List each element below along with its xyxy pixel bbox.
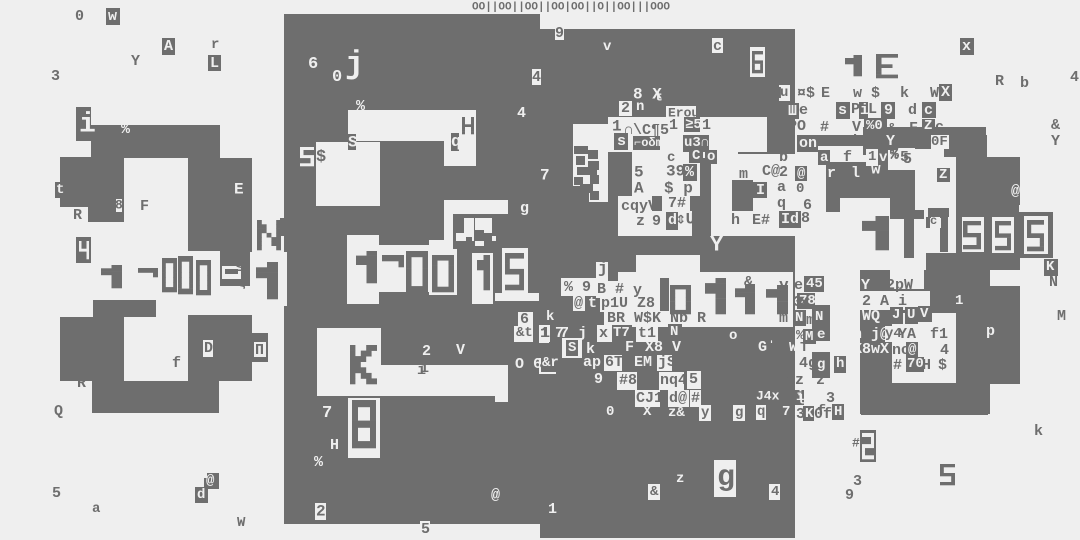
svg-text:Π: Π — [255, 342, 264, 359]
svg-text:9: 9 — [594, 371, 603, 388]
svg-text:#8: #8 — [619, 372, 637, 389]
svg-text:k: k — [546, 309, 554, 325]
svg-text:k: k — [1034, 423, 1043, 440]
svg-text:%: % — [314, 454, 324, 471]
svg-text:@: @ — [797, 166, 806, 182]
svg-text:PO: PO — [788, 118, 806, 135]
svg-text:3: 3 — [51, 68, 60, 85]
svg-text:P: P — [851, 101, 860, 118]
svg-text:k: k — [900, 85, 909, 102]
svg-text:0: 0 — [332, 68, 342, 87]
svg-text:c: c — [930, 214, 937, 228]
svg-text:r: r — [827, 165, 836, 182]
svg-text:W: W — [789, 340, 798, 356]
svg-text:E: E — [821, 85, 830, 102]
svg-text:8: 8 — [801, 210, 810, 227]
svg-text:q: q — [451, 133, 461, 152]
svg-text:9: 9 — [845, 487, 854, 504]
svg-text:EM: EM — [634, 354, 652, 371]
svg-text:V: V — [456, 342, 465, 359]
svg-text:W: W — [930, 85, 939, 102]
svg-text:1: 1 — [541, 325, 550, 342]
svg-text:&r: &r — [542, 355, 559, 371]
svg-text:t: t — [56, 182, 64, 198]
svg-text:ap: ap — [583, 354, 601, 371]
svg-text:v: v — [603, 39, 612, 55]
svg-text:&: & — [650, 484, 659, 500]
svg-text:≤: ≤ — [236, 260, 244, 276]
svg-text:D: D — [204, 340, 213, 357]
svg-text:jS: jS — [658, 354, 676, 371]
svg-text:⌐oδm: ⌐oδm — [634, 136, 663, 150]
svg-text:@: @ — [206, 473, 215, 489]
svg-text:u: u — [780, 85, 788, 101]
svg-text:C: C — [692, 148, 701, 164]
svg-text:#: # — [852, 436, 860, 451]
svg-text:6T: 6T — [605, 354, 623, 371]
svg-text:Y: Y — [1051, 133, 1060, 150]
svg-text:1: 1 — [702, 117, 711, 134]
svg-text:0: 0 — [796, 181, 804, 197]
svg-text:x: x — [599, 325, 608, 342]
svg-text:4: 4 — [517, 105, 526, 122]
svg-text:2pW: 2pW — [886, 277, 913, 294]
svg-text:ς: ς — [238, 276, 246, 291]
svg-text:nq4: nq4 — [660, 372, 687, 389]
svg-text:9: 9 — [884, 102, 893, 119]
svg-text:&: & — [744, 274, 753, 291]
svg-text:#: # — [893, 357, 902, 374]
svg-text:F: F — [909, 120, 918, 137]
svg-text:t: t — [655, 90, 663, 105]
svg-text:s: s — [617, 133, 626, 150]
svg-text:$: $ — [938, 357, 947, 374]
svg-text:CJ1: CJ1 — [636, 390, 663, 407]
svg-text:0F: 0F — [931, 134, 948, 150]
svg-text:hr: hr — [853, 133, 871, 150]
svg-text:r: r — [211, 37, 219, 53]
svg-text:45: 45 — [806, 276, 823, 292]
svg-text:A: A — [634, 180, 644, 198]
svg-text:5: 5 — [903, 151, 912, 168]
svg-text:6: 6 — [520, 311, 529, 328]
svg-text:0f: 0f — [814, 406, 832, 423]
svg-text:E#: E# — [752, 212, 770, 229]
svg-text:3: 3 — [797, 297, 806, 314]
svg-text:z: z — [816, 372, 825, 389]
svg-text:#: # — [820, 119, 829, 136]
svg-text:@: @ — [1011, 183, 1020, 200]
svg-text:1: 1 — [955, 293, 963, 309]
svg-text:N: N — [815, 309, 823, 325]
svg-text:m: m — [779, 310, 788, 327]
svg-text:4: 4 — [1070, 69, 1079, 86]
svg-text:p: p — [986, 323, 995, 340]
svg-text:M: M — [1057, 308, 1066, 325]
svg-text:@: @ — [574, 295, 583, 312]
svg-text:S: S — [348, 134, 358, 152]
svg-text:h: h — [836, 356, 844, 372]
svg-text:Q: Q — [54, 403, 63, 420]
svg-text:7: 7 — [782, 404, 790, 420]
svg-text:7: 7 — [322, 404, 332, 423]
svg-text:R: R — [779, 133, 788, 150]
svg-text:i: i — [79, 110, 96, 141]
svg-text:3: 3 — [796, 406, 805, 423]
svg-text:R: R — [77, 375, 86, 392]
svg-text:d: d — [197, 487, 205, 503]
svg-text:c: c — [713, 38, 722, 55]
svg-text:K: K — [805, 406, 814, 422]
svg-text:n: n — [636, 99, 644, 115]
svg-text:5: 5 — [689, 371, 698, 388]
svg-text:X: X — [941, 84, 950, 101]
svg-text:o: o — [729, 328, 737, 344]
svg-text:%: % — [890, 148, 899, 164]
svg-text:9: 9 — [652, 213, 661, 230]
svg-text:H: H — [834, 404, 842, 420]
svg-text:c: c — [924, 102, 933, 119]
svg-text:V: V — [920, 306, 929, 322]
svg-text:2: 2 — [316, 503, 326, 521]
svg-text:U: U — [907, 307, 915, 323]
svg-text:g: g — [817, 357, 825, 373]
svg-text:bK8wX: bK8wX — [844, 341, 889, 358]
svg-text:E: E — [234, 181, 244, 199]
svg-text:6: 6 — [308, 55, 318, 74]
svg-text:L: L — [210, 55, 219, 72]
svg-text:%: % — [121, 121, 131, 138]
svg-text:7#: 7# — [668, 195, 686, 212]
svg-text:e: e — [794, 277, 803, 294]
svg-text:e: e — [817, 327, 825, 343]
svg-text:R: R — [995, 73, 1004, 90]
svg-text:1: 1 — [548, 501, 557, 518]
svg-text:f: f — [172, 355, 181, 372]
svg-text:F: F — [140, 198, 149, 215]
svg-text:y: y — [779, 277, 789, 295]
svg-text:2: 2 — [422, 343, 431, 360]
svg-text:z: z — [676, 471, 684, 487]
svg-text:#: # — [691, 390, 700, 407]
svg-text:≥5: ≥5 — [685, 117, 702, 133]
svg-text:N: N — [670, 324, 678, 340]
svg-text:on: on — [799, 135, 817, 152]
svg-text:x: x — [962, 38, 971, 55]
svg-text:5: 5 — [52, 485, 61, 502]
svg-text:I Y: I Y — [843, 277, 870, 294]
svg-text:¤$: ¤$ — [797, 85, 815, 102]
svg-text:39: 39 — [666, 163, 685, 181]
svg-text:f: f — [843, 149, 852, 166]
svg-text:j: j — [345, 46, 364, 83]
svg-text:j: j — [598, 260, 608, 278]
svg-text:N: N — [1049, 274, 1058, 291]
svg-text:a: a — [777, 179, 786, 196]
svg-text:b: b — [1020, 75, 1029, 92]
svg-text:q: q — [777, 195, 786, 212]
svg-text:L: L — [834, 134, 843, 151]
svg-text:z: z — [636, 213, 645, 230]
svg-text:@: @ — [491, 487, 500, 504]
svg-text:w $: w $ — [853, 85, 880, 102]
svg-text:R: R — [73, 207, 82, 224]
svg-text:⇕U: ⇕U — [676, 211, 695, 229]
svg-text:Y: Y — [131, 53, 140, 70]
svg-text:%: % — [356, 98, 366, 115]
svg-text:$: $ — [316, 148, 326, 167]
svg-text:w: w — [108, 8, 117, 25]
svg-text:H: H — [330, 437, 339, 454]
svg-text:F: F — [625, 339, 634, 356]
svg-text:g: g — [520, 200, 529, 217]
svg-text:g: g — [717, 461, 735, 495]
svg-text:L: L — [868, 101, 877, 118]
svg-text:q: q — [757, 404, 765, 420]
svg-text:m: m — [806, 312, 815, 329]
svg-text:7: 7 — [540, 167, 550, 185]
svg-text:W: W — [237, 515, 246, 531]
svg-text:w: w — [871, 161, 881, 179]
svg-text:J4x: J4x — [756, 389, 780, 404]
svg-text:O 6: O 6 — [515, 356, 542, 373]
svg-text:WQ: WQ — [862, 308, 880, 325]
svg-text:e: e — [799, 102, 808, 119]
svg-text:%: % — [685, 164, 695, 181]
svg-text:d@: d@ — [669, 390, 687, 407]
svg-text:5: 5 — [421, 521, 430, 538]
svg-text:f1: f1 — [930, 326, 948, 343]
svg-text:S: S — [568, 340, 576, 356]
svg-text:1: 1 — [669, 117, 678, 134]
svg-text:sz: sz — [786, 372, 804, 389]
svg-text:d: d — [908, 102, 917, 119]
svg-text:a: a — [92, 501, 101, 517]
svg-text:3: 3 — [853, 473, 862, 490]
svg-text:a: a — [820, 150, 829, 166]
svg-text:t: t — [588, 295, 597, 312]
svg-text:&: & — [1051, 117, 1060, 134]
svg-text:m: m — [739, 166, 748, 183]
svg-text:T: T — [800, 340, 808, 356]
svg-text:J: J — [892, 307, 900, 323]
svg-text:Id: Id — [781, 211, 799, 228]
svg-text:s: s — [838, 102, 847, 119]
svg-text:h: h — [731, 212, 740, 229]
svg-text:z&: z& — [668, 405, 685, 421]
svg-text:i: i — [417, 362, 426, 379]
svg-text:4: 4 — [771, 484, 779, 500]
svg-text:8: 8 — [115, 198, 123, 213]
svg-text:H: H — [922, 357, 931, 374]
svg-text:g: g — [735, 405, 743, 421]
svg-text:0: 0 — [606, 404, 614, 420]
svg-text:4: 4 — [532, 69, 541, 86]
svg-text:Z: Z — [939, 167, 947, 183]
svg-text:OO||OO||OO||OO|OO||O||OO|||OOO: OO||OO||OO||OO|OO||O||OO|||OOO — [472, 1, 670, 13]
svg-text:o: o — [707, 149, 715, 165]
svg-text:9: 9 — [555, 25, 564, 42]
svg-text:%0: %0 — [866, 118, 883, 134]
svg-text:l: l — [797, 393, 805, 408]
svg-text:K: K — [1046, 259, 1055, 275]
svg-text:l: l — [851, 165, 860, 182]
svg-text:2: 2 — [621, 100, 630, 117]
svg-text:Z: Z — [924, 118, 932, 134]
svg-text:Y: Y — [710, 233, 724, 258]
svg-text:C@: C@ — [762, 163, 780, 180]
svg-text:% 9: % 9 — [564, 279, 591, 296]
svg-text:y: y — [701, 405, 710, 421]
svg-text:Gˈ: Gˈ — [758, 339, 776, 356]
svg-text:A: A — [164, 38, 173, 55]
svg-text:I: I — [756, 182, 765, 199]
svg-text:0: 0 — [75, 8, 84, 25]
svg-text:l 4g: l 4g — [781, 355, 817, 372]
svg-text:YA: YA — [898, 326, 916, 343]
